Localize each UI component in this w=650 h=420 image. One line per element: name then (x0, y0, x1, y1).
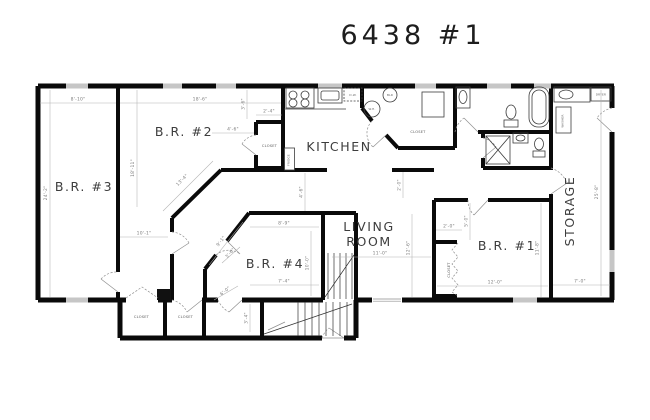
bathroom-2 (486, 133, 545, 164)
closet-label-br1: CLOSET (447, 262, 451, 278)
dishwasher-label: D.W. (349, 93, 356, 97)
utility-closet: BLR W.H. CLOSET (364, 88, 444, 134)
kitchen-sink-icon (318, 88, 342, 103)
door-swing-exterior-storage (597, 118, 612, 132)
dimension-br2-closet-width: 2'-4" (256, 109, 282, 116)
toilet-tank (504, 120, 518, 127)
closet-label-1: CLOSET (134, 315, 150, 319)
dimension-text: 2'-4" (263, 109, 275, 115)
door-swing-br2-closet (242, 144, 256, 155)
room-label-br1: B.R. #1 (478, 238, 536, 253)
laundry-sink-icon (559, 90, 573, 99)
fridge-label: FRIDGE (287, 154, 291, 166)
boiler-label: BLR (387, 93, 393, 97)
dimension-br1-closet-offset: 5'-0" (464, 203, 471, 240)
dimension-text: 2'-0" (397, 179, 403, 191)
dimension-storage-width: 7'-0" (553, 279, 610, 286)
dimension-text: 11'-8" (535, 241, 541, 256)
dimension-text: 13'-4" (175, 173, 190, 188)
toilet-tank (533, 151, 545, 157)
dimension-text: 10'-0" (305, 256, 311, 271)
room-label-kitchen: KITCHEN (306, 139, 371, 154)
dimension-text: 24'-2" (43, 186, 49, 201)
burner-icon (289, 91, 297, 99)
door-arc-br3 (101, 272, 118, 279)
bathroom-1 (456, 87, 549, 127)
vanity-icon (513, 133, 528, 143)
dimension-br2-lower-width: 10'-1" (120, 231, 168, 238)
kitchen-sink-basin (321, 91, 339, 100)
masonry-block (157, 289, 171, 300)
dimension-text: 3'-6" (241, 98, 247, 110)
door-swing-closet2 (187, 300, 202, 312)
closet-label-utility: CLOSET (410, 130, 426, 134)
bathtub-basin (532, 90, 546, 124)
dimension-living-width: 11'-0" (332, 251, 431, 258)
dimension-text: 3'-4" (244, 312, 250, 324)
stair-treads-upper (325, 253, 354, 299)
kitchen-fixtures: D.W. FRIDGE (284, 88, 362, 170)
dimension-hall-depth: 3'-4" (244, 304, 251, 332)
door-swing-hall (172, 243, 189, 254)
dimension-text: 7'-0" (574, 279, 586, 285)
dimension-text: 12'-0" (488, 280, 503, 286)
dimension-text: 7'-4" (278, 279, 290, 285)
dimension-br4-bottom-width: 7'-4" (250, 279, 319, 286)
dimension-living-height: 12'-6" (406, 214, 413, 297)
door-swing-bath2 (483, 147, 496, 158)
dimension-text: 11'-0" (373, 251, 388, 257)
dimension-br2-width: 18'-6" (120, 97, 281, 104)
shower-x (486, 136, 510, 164)
door-arc-closet2 (172, 300, 187, 312)
room-label-br2: B.R. #2 (155, 124, 213, 139)
shelf (422, 92, 444, 117)
door-arc-br2-closet (242, 135, 256, 144)
dimension-br1-closet-width: 2'-0" (436, 224, 462, 231)
dimension-br4-width: 8'-9" (250, 221, 319, 228)
rear-door-arc (322, 328, 329, 338)
door-swing-utility (373, 135, 386, 147)
dimension-text: 4'-6" (299, 186, 305, 198)
dimension-text: 2'-0" (443, 224, 455, 230)
dimension-text: 12'-6" (406, 241, 412, 256)
dimension-hall-width: 6'-0" (214, 285, 238, 300)
floor-plan-canvas: 6438 #1 (0, 0, 650, 420)
water-heater-label: W.H. (368, 107, 375, 111)
dimension-br2-height: 18'-11" (130, 90, 137, 207)
dimension-living-offset: 4'-6" (299, 173, 306, 211)
door-arc-br4-hall (218, 300, 229, 312)
dimension-text: 4'-6" (227, 127, 239, 133)
room-label-storage: STORAGE (562, 176, 577, 247)
dimension-text: 9'-1" (215, 235, 227, 248)
dimension-text: 18'-11" (130, 159, 136, 177)
plan-title: 6438 #1 (340, 20, 485, 51)
closet-label-2: CLOSET (178, 315, 194, 319)
door-arc-exterior-storage (597, 108, 612, 118)
bifold-br1-closet (452, 243, 458, 296)
dimension-br1-width: 12'-0" (437, 280, 548, 287)
dimension-text: 8'-9" (278, 221, 290, 227)
toilet-icon (535, 138, 544, 150)
floor-plan-page: 6438 #1 (0, 0, 650, 420)
dimension-br4-height: 10'-0" (305, 231, 312, 296)
room-label-living-1: LIVING (343, 219, 395, 234)
closet-label-br2: CLOSET (262, 144, 278, 148)
basement-door-leaf (268, 322, 285, 330)
sliding-patio-door (373, 299, 401, 301)
sink-icon (516, 135, 525, 141)
window-segments (66, 86, 612, 300)
burner-icon (301, 99, 309, 107)
toilet-icon (506, 105, 516, 119)
dimension-text: 8'-10" (71, 97, 86, 103)
room-label-living-2: ROOM (346, 234, 392, 249)
door-arc-br1 (468, 200, 474, 215)
dimension-living-nook: 2'-0" (397, 172, 404, 198)
double-doors-closet1 (126, 287, 158, 298)
door-arc-hall (172, 232, 189, 243)
door-swing-br3 (101, 279, 118, 292)
dimension-text: 6'-0" (219, 285, 232, 297)
burner-icon (289, 99, 297, 107)
dimension-text: 5'-0" (464, 215, 470, 227)
dimension-text: 18'-6" (193, 97, 208, 103)
burner-icon (301, 91, 309, 99)
dimension-text: 10'-1" (137, 231, 152, 237)
door-swing-bath1 (464, 118, 478, 132)
dimension-br3-width: 8'-10" (40, 97, 116, 104)
dimension-hall-diagonal: 3'-6" (222, 247, 240, 263)
dimension-br2-closet-offset: 4'-6" (212, 127, 254, 134)
room-label-br3: B.R. #3 (55, 179, 113, 194)
door-swing-br1 (474, 200, 488, 215)
dimension-br3-height: 24'-2" (43, 90, 50, 297)
door-swing-br4-hall (229, 300, 242, 312)
washer-label: WASHER (561, 114, 565, 127)
stair-treads-lower (264, 302, 352, 336)
room-label-br4: B.R. #4 (246, 256, 304, 271)
dimension-br2-closet-side: 3'-6" (241, 90, 248, 119)
dimension-text: 25'-8" (594, 185, 600, 200)
sink-icon (459, 91, 467, 104)
dimension-br1-height: 11'-8" (535, 203, 542, 297)
laundry-area: DRYER WASHER (554, 87, 611, 133)
